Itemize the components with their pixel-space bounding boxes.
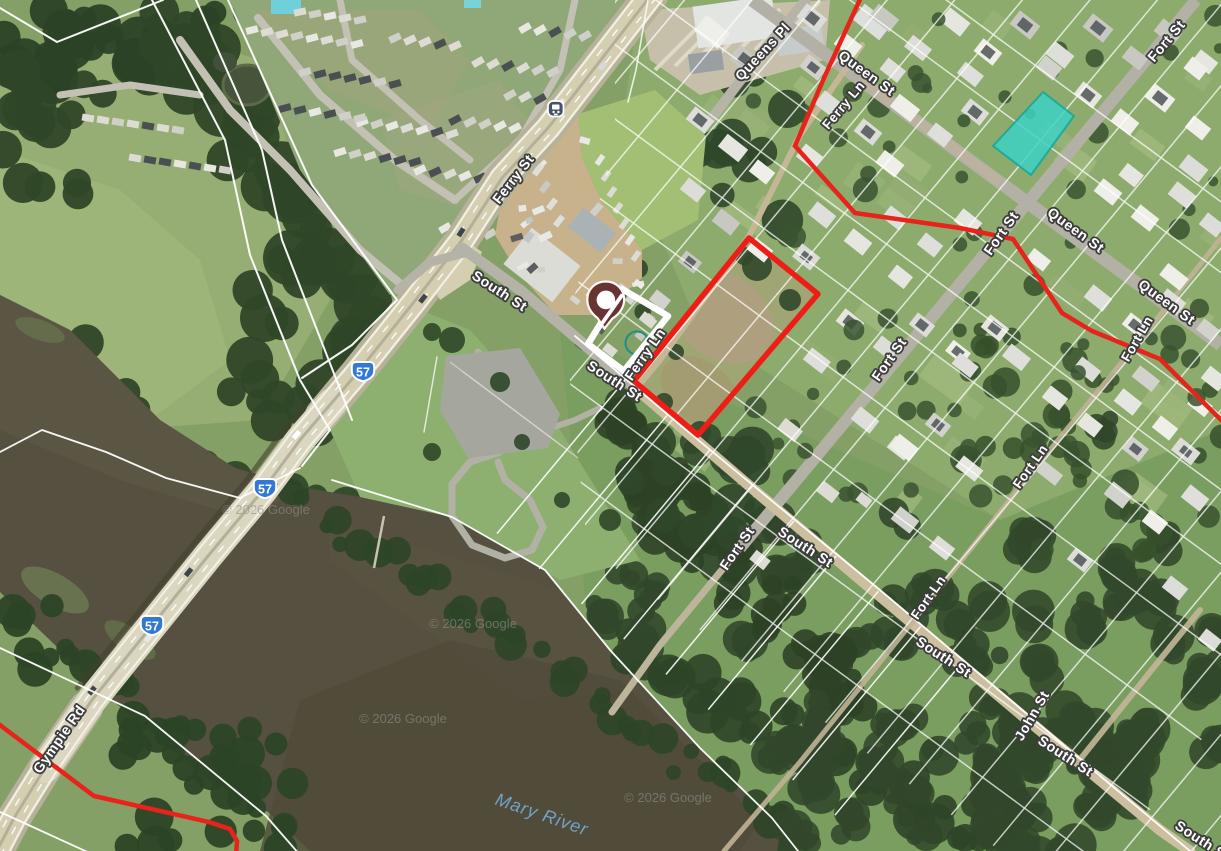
svg-text:57: 57 — [145, 620, 159, 634]
svg-text:57: 57 — [356, 366, 370, 380]
svg-text:57: 57 — [258, 483, 272, 497]
svg-text:© 2026 Google: © 2026 Google — [624, 790, 712, 805]
svg-text:© 2026 Google: © 2026 Google — [359, 711, 447, 726]
svg-text:© 2026 Google: © 2026 Google — [429, 616, 517, 631]
svg-text:© 2026 Google: © 2026 Google — [222, 502, 310, 517]
